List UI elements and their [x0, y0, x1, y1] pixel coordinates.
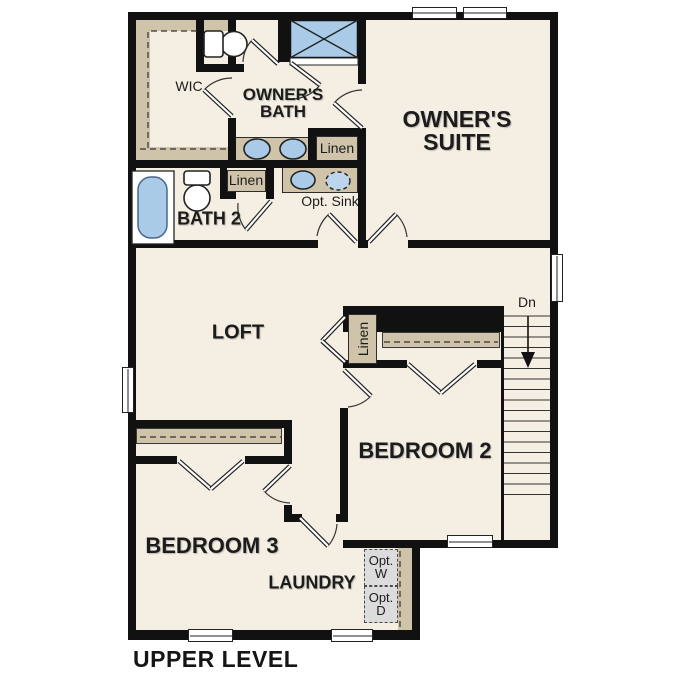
stairs-direction-label: Dn	[518, 294, 536, 310]
bedroom2-closet-shelf	[382, 332, 500, 348]
wall-segment	[408, 240, 550, 248]
wall-segment	[196, 64, 244, 72]
optional-sink-counter	[282, 167, 358, 193]
room-label-bedroom3: BEDROOM 3	[145, 533, 278, 559]
fixture-label-line: W	[369, 567, 394, 580]
fixture-label-opt-sink: Opt. Sink	[301, 193, 359, 209]
window	[331, 629, 373, 642]
stair-edge-wall	[501, 306, 504, 540]
closet-label-linen: Linen	[320, 140, 354, 156]
closet-label-linen-vertical: Linen	[355, 322, 371, 356]
fixture-label-opt-dryer: Opt. D	[369, 591, 394, 617]
wic-shelf-bottom	[136, 147, 228, 160]
wic-shelf-top	[136, 20, 228, 31]
window	[412, 7, 457, 19]
wall-segment	[477, 360, 503, 368]
window	[447, 535, 493, 548]
closet-label-linen: Linen	[229, 172, 263, 188]
room-label-bedroom2: BEDROOM 2	[358, 438, 491, 464]
window	[122, 367, 134, 413]
room-label-line: OWNER'S	[243, 86, 324, 103]
wall-segment	[196, 12, 204, 72]
wall-segment	[136, 240, 318, 248]
wall-segment	[136, 456, 177, 464]
room-label-wic: WIC	[175, 78, 202, 94]
wall-segment	[358, 128, 366, 248]
wall-segment	[412, 540, 420, 640]
wall-segment	[266, 168, 274, 199]
vanity-counter	[232, 137, 316, 161]
wall-segment	[284, 514, 302, 522]
wall-segment	[136, 420, 290, 428]
wall-segment	[340, 408, 348, 516]
room-label-laundry: LAUNDRY	[268, 573, 355, 594]
page-title: UPPER LEVEL	[133, 646, 298, 673]
laundry-cabinet-strip	[398, 548, 412, 630]
room-label-bath2: BATH 2	[177, 209, 241, 230]
wall-segment	[220, 192, 236, 199]
window	[188, 629, 233, 642]
room-label-line: BATH	[243, 103, 324, 120]
room-label-owners-bath: OWNER'S BATH	[243, 86, 324, 120]
wall-segment	[245, 456, 290, 464]
wall-segment	[136, 160, 362, 168]
wall-segment	[128, 630, 420, 640]
room-label-loft: LOFT	[212, 322, 264, 345]
window	[463, 7, 507, 19]
wall-segment	[358, 240, 368, 248]
room-label-owners-suite: OWNER'S SUITE	[403, 108, 512, 154]
wall-segment	[128, 12, 136, 640]
fixture-label-opt-washer: Opt. W	[369, 554, 394, 580]
wall-segment	[228, 118, 236, 161]
floor-plan-canvas: OWNER'S SUITE OWNER'S BATH WIC BATH 2 LO…	[0, 0, 687, 687]
window	[551, 254, 563, 302]
wall-segment	[278, 12, 290, 62]
wall-segment	[308, 128, 316, 161]
room-label-line: SUITE	[403, 131, 512, 154]
wall-segment	[358, 20, 366, 84]
wall-segment	[228, 12, 236, 72]
room-label-line: OWNER'S	[403, 108, 512, 131]
wic-shelf-left	[136, 20, 150, 160]
bedroom3-closet-shelf	[136, 428, 282, 444]
fixture-label-line: D	[369, 604, 394, 617]
